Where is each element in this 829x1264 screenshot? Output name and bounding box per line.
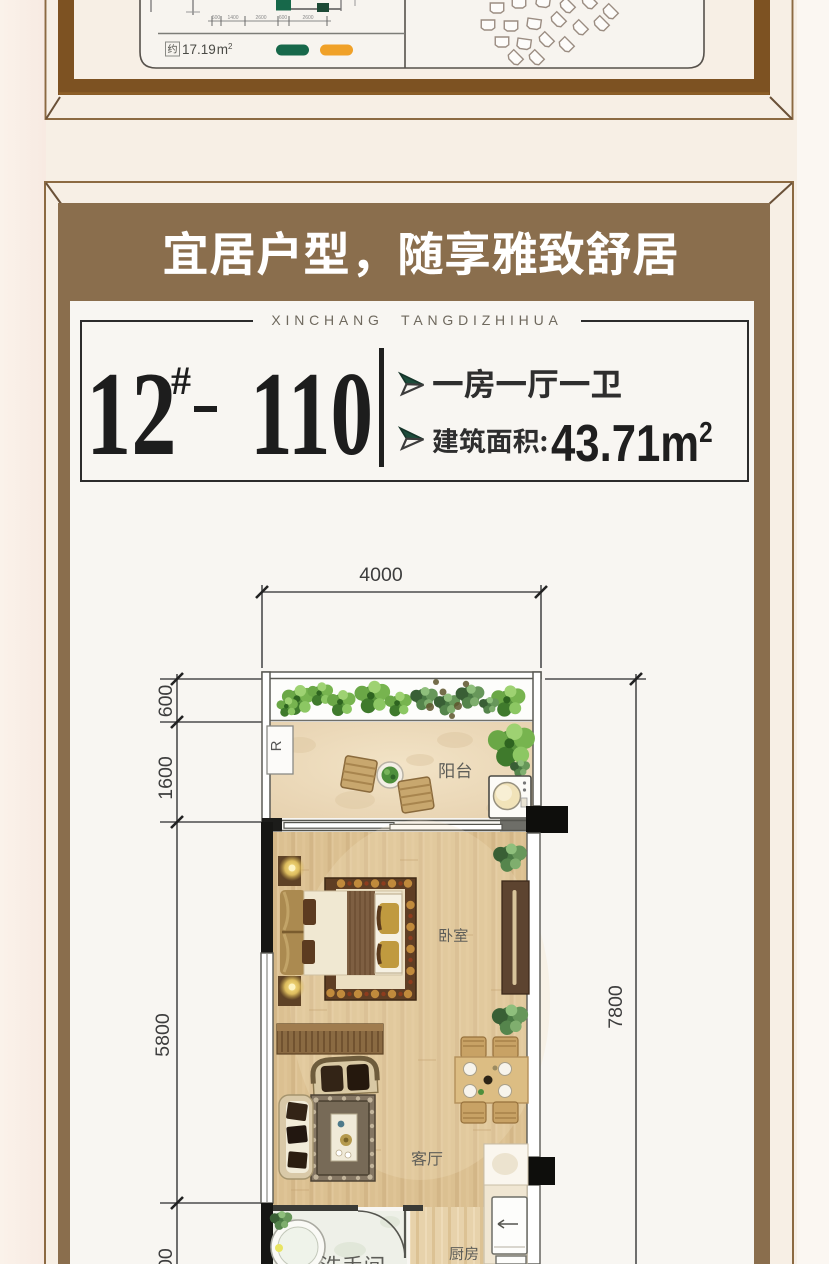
svg-text:5800: 5800 [152,1013,174,1057]
svg-text:17.19m2: 17.19m2 [182,42,233,57]
svg-text:2600: 2600 [302,15,313,21]
svg-text:600: 600 [212,15,221,21]
svg-text:R: R [268,740,285,751]
svg-text:1400: 1400 [227,15,238,21]
svg-text:600: 600 [279,15,288,21]
svg-text:1400: 1400 [155,1248,177,1264]
svg-text:600: 600 [155,685,177,718]
svg-text:7800: 7800 [605,985,627,1029]
svg-text:1600: 1600 [155,756,177,800]
svg-text:2600: 2600 [255,15,266,21]
svg-text:4000: 4000 [359,564,403,586]
